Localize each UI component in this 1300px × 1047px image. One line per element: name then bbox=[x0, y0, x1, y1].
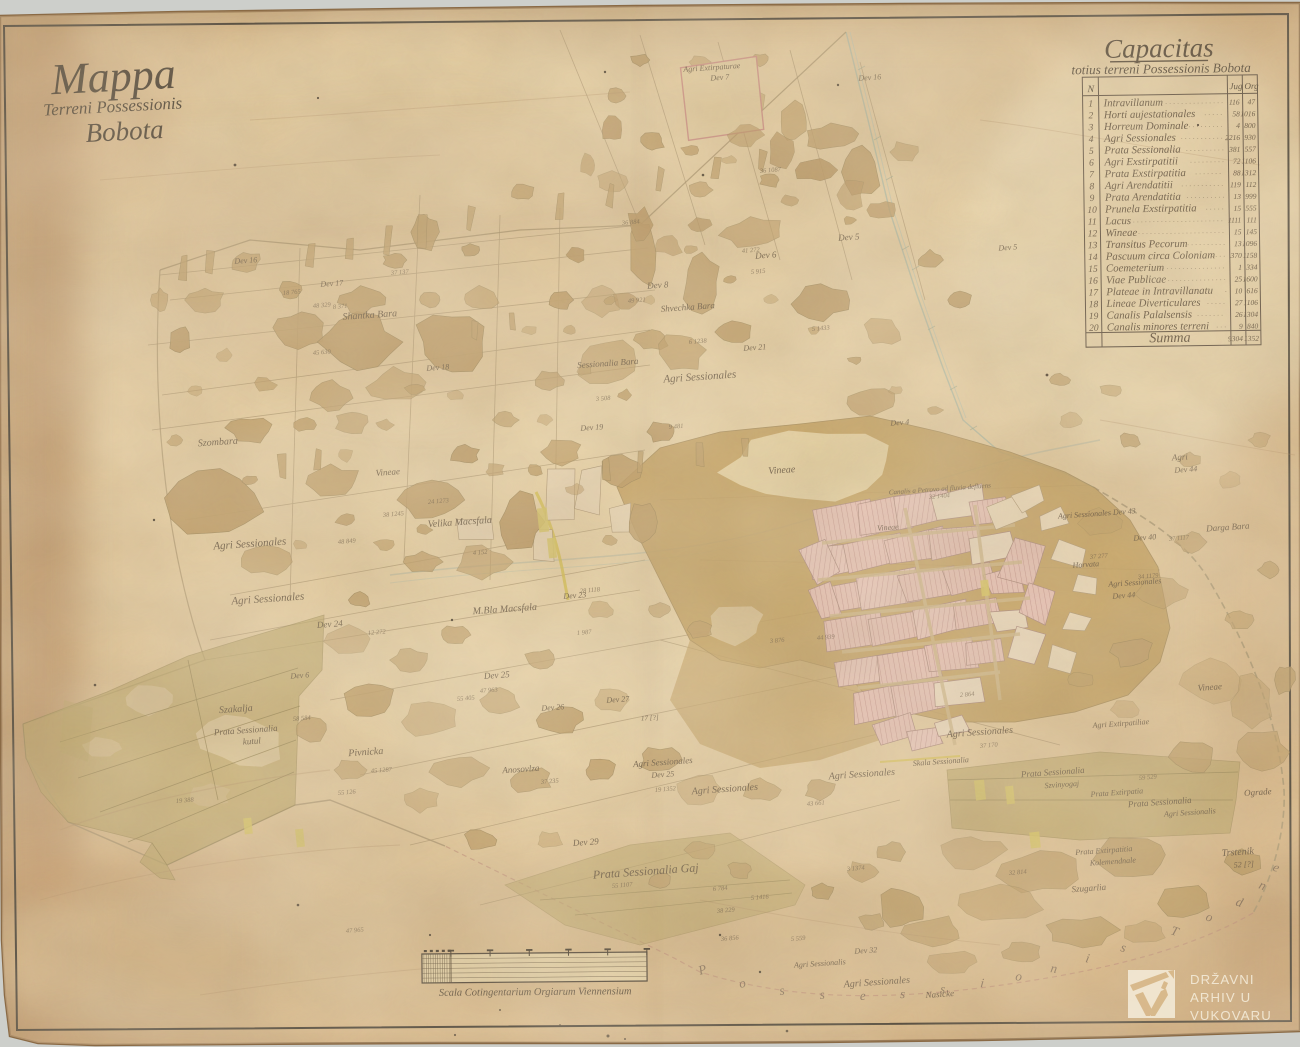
svg-text:DRŽAVNI: DRŽAVNI bbox=[1190, 972, 1255, 987]
svg-text:VUKOVARU: VUKOVARU bbox=[1190, 1008, 1272, 1023]
svg-text:ARHIV U: ARHIV U bbox=[1190, 990, 1251, 1005]
